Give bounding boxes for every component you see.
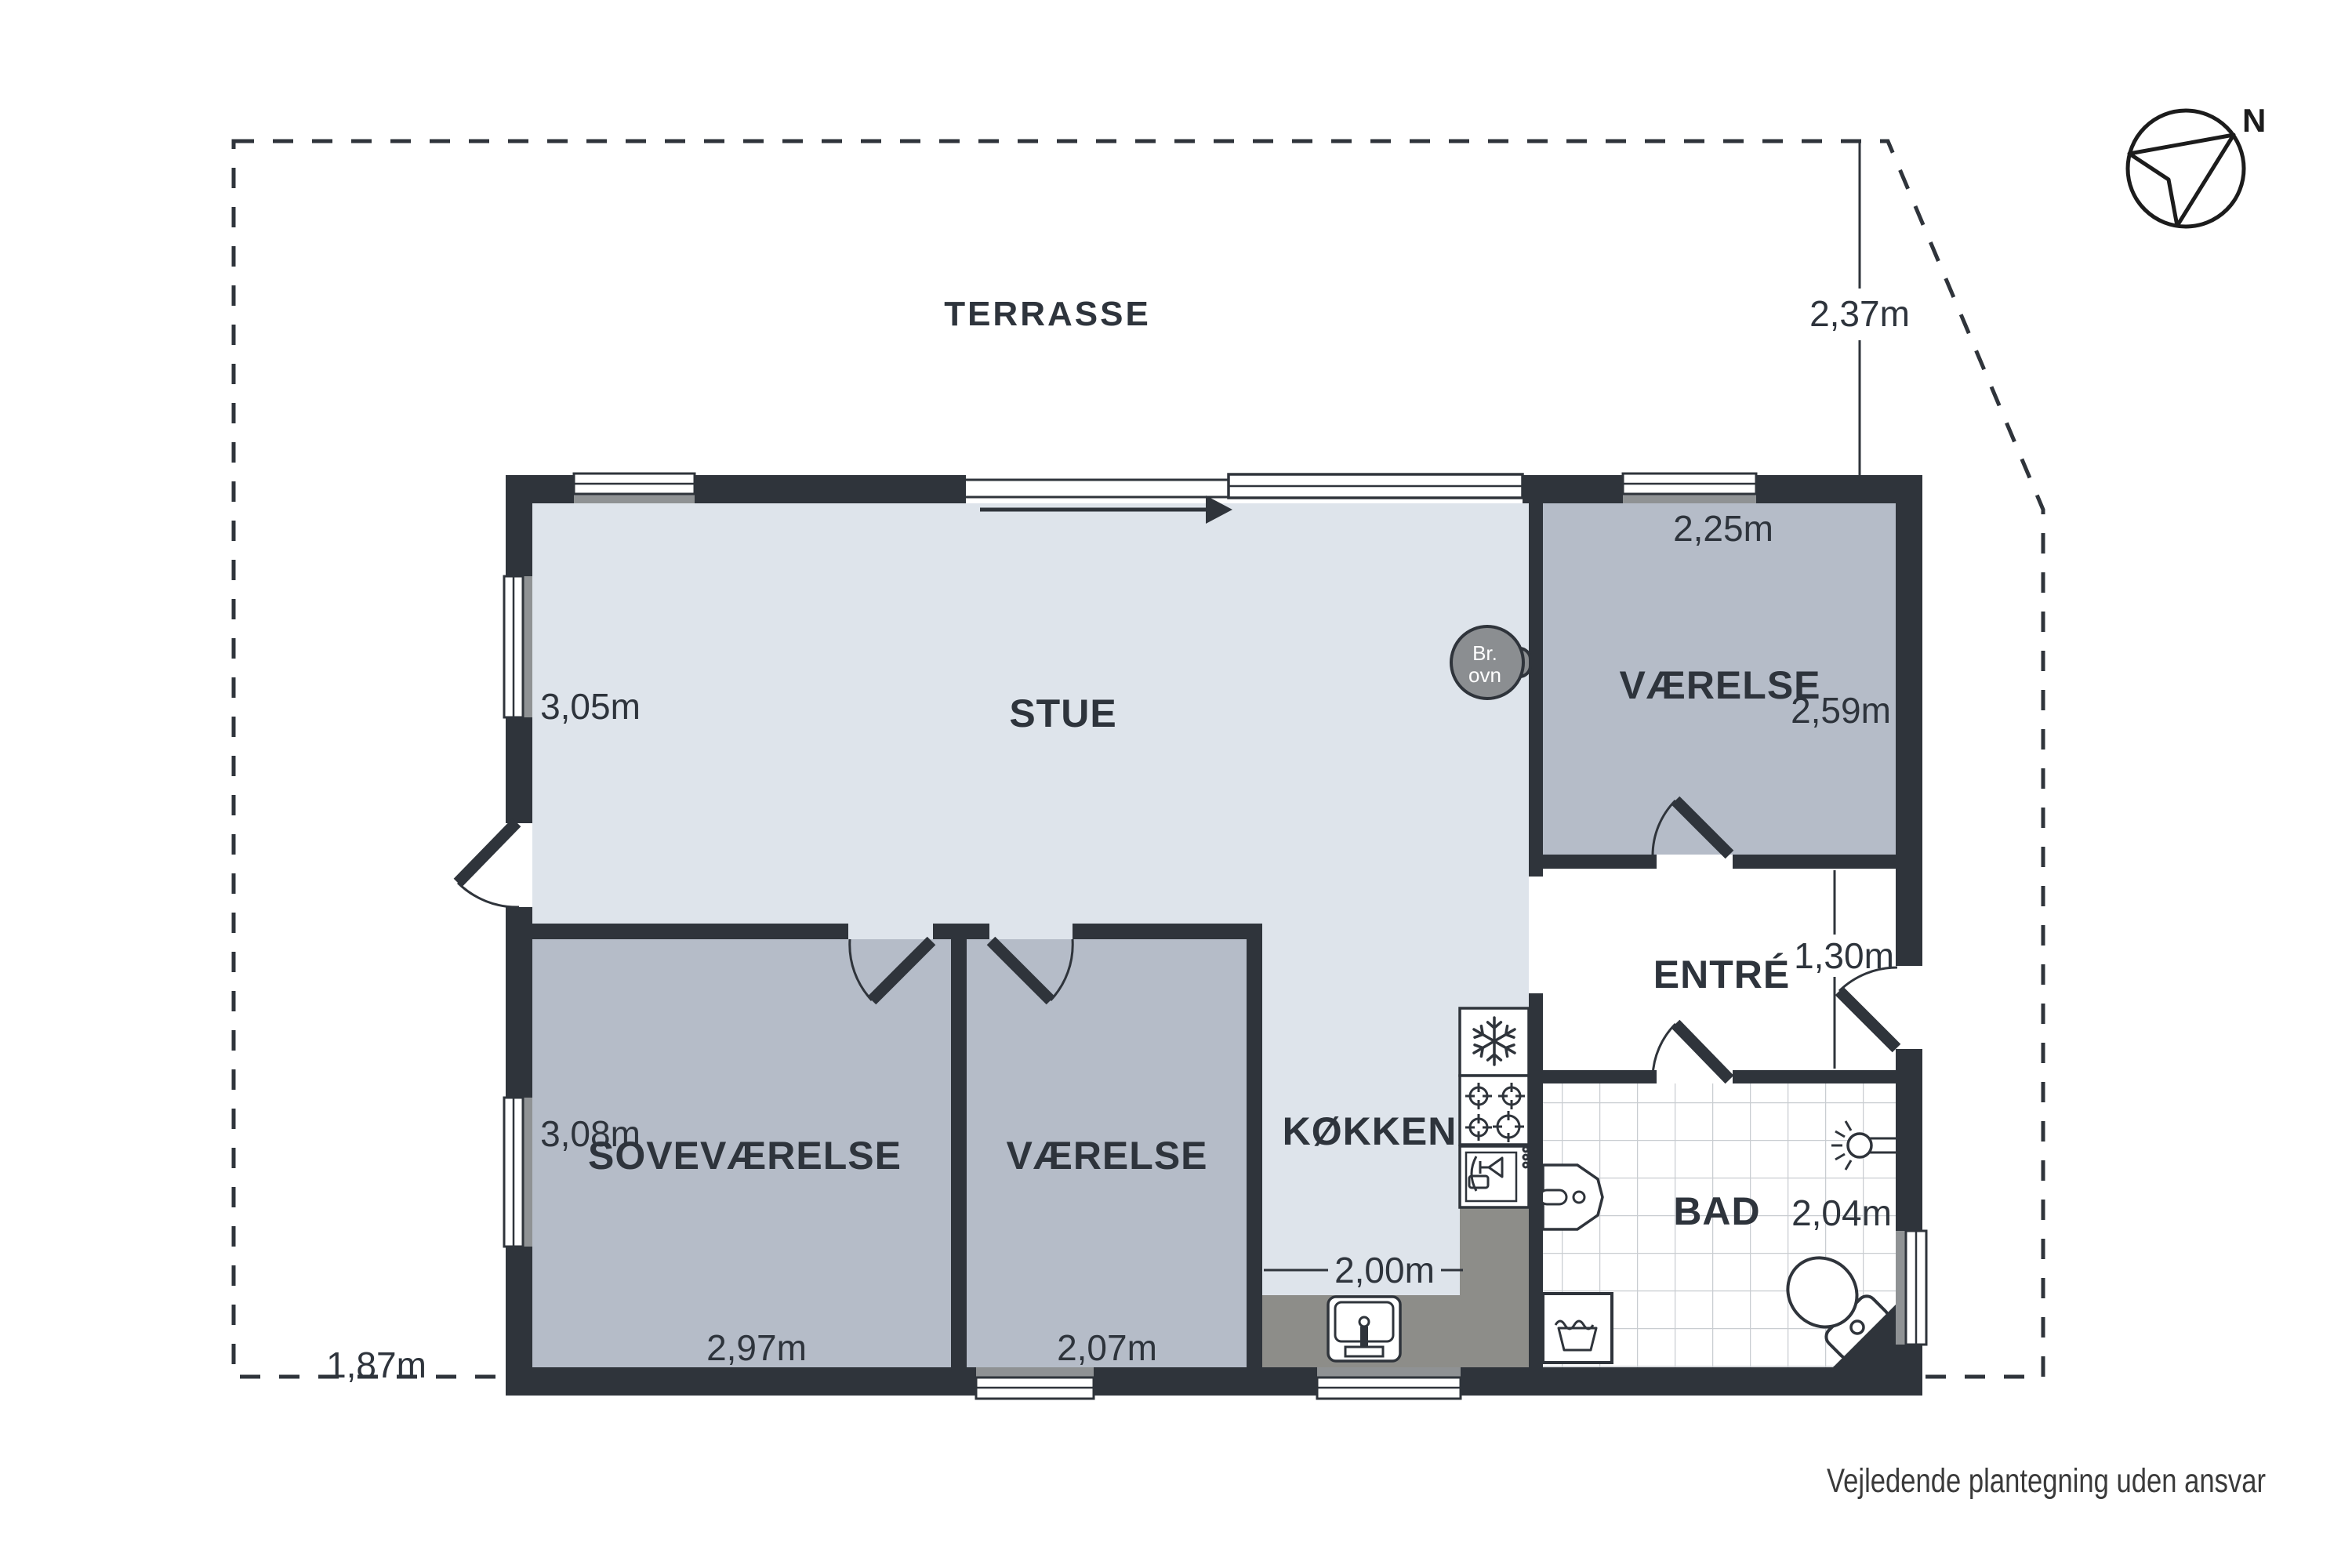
kitchen-counter-east — [1460, 1207, 1529, 1295]
koekken-label: KØKKEN — [1283, 1109, 1457, 1153]
cooktop — [1460, 1076, 1529, 1145]
dim-bad-height: 2,04m — [1791, 1192, 1892, 1233]
door-terrace-west — [458, 822, 519, 907]
bad-label: BAD — [1673, 1189, 1760, 1233]
floor-plan: Br. ovn TERRASSE STUE KØKKEN SOVEVÆRELSE… — [0, 0, 2352, 1568]
window-top-stue — [574, 474, 695, 503]
window-bottom-koekken — [1317, 1367, 1461, 1399]
disclaimer-text: Vejledende plantegning uden ansvar — [1827, 1462, 2266, 1500]
vaerelse-door-gap-floor — [989, 924, 1073, 939]
stove-label-line2: ovn — [1468, 663, 1501, 687]
window-top-vaerelse-ne — [1623, 474, 1756, 503]
dim-stue-height: 3,05m — [540, 686, 641, 727]
window-left-sovevaerelse — [504, 1098, 532, 1247]
compass: N — [2128, 102, 2266, 227]
entre-label: ENTRÉ — [1653, 953, 1790, 996]
dim-sovevaerelse-height: 3,08m — [540, 1113, 641, 1154]
dim-vaerelse-ne-height: 2,59m — [1791, 690, 1891, 731]
sovevaerelse-door-gap-floor — [848, 924, 933, 939]
dim-terrace-right: 2,37m — [1809, 293, 1910, 334]
north-label: N — [2242, 102, 2266, 139]
window-left-stue — [504, 576, 532, 717]
basin-faucet-icon — [1540, 1190, 1566, 1204]
terrace-label: TERRASSE — [944, 295, 1151, 333]
vaerelse-mid-label: VÆRELSE — [1006, 1134, 1207, 1178]
window-right-bad — [1896, 1231, 1926, 1345]
dim-vaerelse-mid-width: 2,07m — [1057, 1327, 1157, 1368]
stue-label: STUE — [1009, 691, 1116, 735]
dim-terrace-left: 1,87m — [326, 1345, 426, 1385]
dim-sovevaerelse-width: 2,97m — [706, 1327, 807, 1368]
stove-label-line1: Br. — [1472, 641, 1497, 665]
dim-vaerelse-ne-width: 2,25m — [1673, 508, 1773, 549]
dim-entre-height: 1,30m — [1794, 935, 1894, 976]
dim-koekken-width: 2,00m — [1334, 1250, 1435, 1290]
window-bottom-vaerelse-mid — [976, 1367, 1094, 1399]
